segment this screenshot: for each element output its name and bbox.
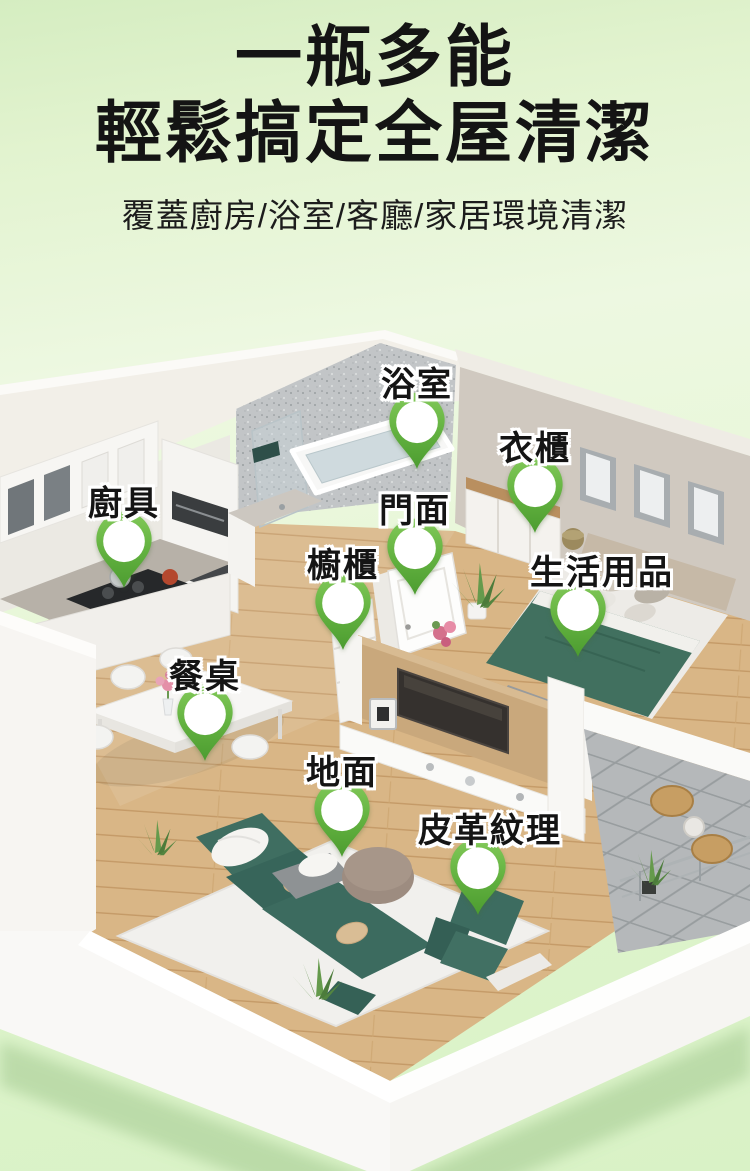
page-title-line1: 一瓶多能 — [0, 20, 750, 96]
pin-daily-necessities: 生活用品 — [506, 545, 650, 658]
pin-label-door-surface: 門面 — [379, 483, 451, 532]
pin-floor: 地面 — [306, 745, 378, 858]
pin-label-leather-texture: 皮革紋理 — [418, 803, 562, 852]
pin-label-daily-necessities: 生活用品 — [530, 545, 674, 594]
wicker-chair — [651, 786, 693, 816]
pin-bathroom: 浴室 — [381, 357, 453, 470]
page-title-line2: 輕鬆搞定全屋清潔 — [0, 96, 750, 172]
pin-label-bathroom: 浴室 — [381, 357, 453, 406]
pin-label-cabinet: 櫥櫃 — [307, 538, 379, 587]
pin-label-wardrobe: 衣櫃 — [499, 421, 571, 470]
pin-kitchenware: 廚具 — [88, 476, 160, 589]
pin-door-surface: 門面 — [379, 483, 451, 596]
pin-label-kitchenware: 廚具 — [88, 476, 160, 525]
header: 一瓶多能 輕鬆搞定全屋清潔 覆蓋廚房/浴室/客廳/家居環境清潔 — [0, 20, 750, 237]
pin-cabinet: 櫥櫃 — [307, 538, 379, 651]
pin-dining-table: 餐桌 — [169, 649, 241, 762]
page-subtitle: 覆蓋廚房/浴室/客廳/家居環境清潔 — [0, 189, 750, 237]
pin-leather-texture: 皮革紋理 — [406, 803, 550, 916]
pin-label-floor: 地面 — [306, 745, 378, 794]
pin-label-dining-table: 餐桌 — [169, 649, 241, 698]
pin-wardrobe: 衣櫃 — [499, 421, 571, 534]
apartment-illustration — [0, 281, 750, 1171]
